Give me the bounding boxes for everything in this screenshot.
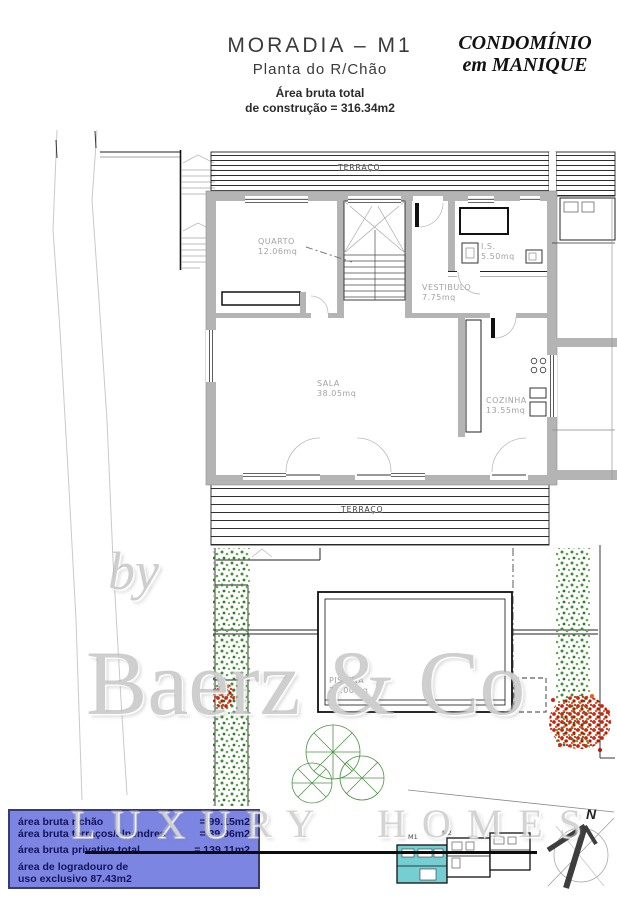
info-row: área bruta r/chão = 99.15m2	[18, 816, 250, 828]
room-label-is: I.S. 5.50mq	[481, 242, 515, 261]
exterior-stairs	[100, 150, 215, 270]
hedge-left	[213, 548, 250, 806]
areas-info-box: área bruta r/chão = 99.15m2 área bruta t…	[8, 809, 260, 889]
flower-bed-left	[213, 683, 235, 709]
site-unit-label-m1: M1	[408, 833, 418, 841]
gross-area-line2: de construção = 316.34m2	[150, 101, 490, 116]
callout-line	[85, 851, 537, 854]
room-label-vestibulo: VESTIBULO 7.75mq	[422, 283, 471, 302]
condominium-logo: CONDOMÍNIO em MANIQUE	[435, 32, 615, 76]
info-note-line1: área de logradouro de	[18, 861, 250, 873]
info-row: área bruta terraços/alpendres = 39.96m2	[18, 828, 250, 840]
room-label-cozinha: COZINHA 13.55mq	[486, 396, 527, 415]
gross-area-note: Área bruta total de construção = 316.34m…	[150, 86, 490, 116]
site-unit-m2	[447, 838, 490, 877]
info-note-line2: uso exclusivo 87.43m2	[18, 873, 250, 885]
site-unit-label-m2: M2	[442, 829, 452, 837]
room-label-piscina: PISCINA 21.00mq	[329, 676, 368, 695]
room-label-sala: SALA 38.05mq	[317, 379, 356, 398]
flower-bed-right	[549, 695, 611, 749]
condominium-logo-line2: em MANIQUE	[435, 54, 615, 76]
neighbour-unit-fragments	[552, 196, 617, 480]
terrace-bottom-label: TERRAÇO	[341, 505, 384, 514]
room-label-quarto: QUARTO 12.06mq	[258, 237, 297, 256]
floorplan-drawing	[0, 0, 617, 898]
north-compass-icon	[548, 818, 614, 888]
info-row: área bruta privativa total = 139.11m2	[18, 844, 250, 856]
floorplan-page: MORADIA – M1 Planta do R/Chão Área bruta…	[0, 0, 617, 898]
trees	[292, 725, 384, 803]
street-boundary-lines	[53, 130, 127, 800]
north-label: N	[586, 806, 596, 822]
gross-area-line1: Área bruta total	[150, 86, 490, 101]
terrace-top-label: TERRAÇO	[338, 163, 381, 172]
condominium-logo-line1: CONDOMÍNIO	[435, 32, 615, 54]
terrace-top-deck	[211, 152, 615, 196]
garden	[213, 545, 615, 812]
